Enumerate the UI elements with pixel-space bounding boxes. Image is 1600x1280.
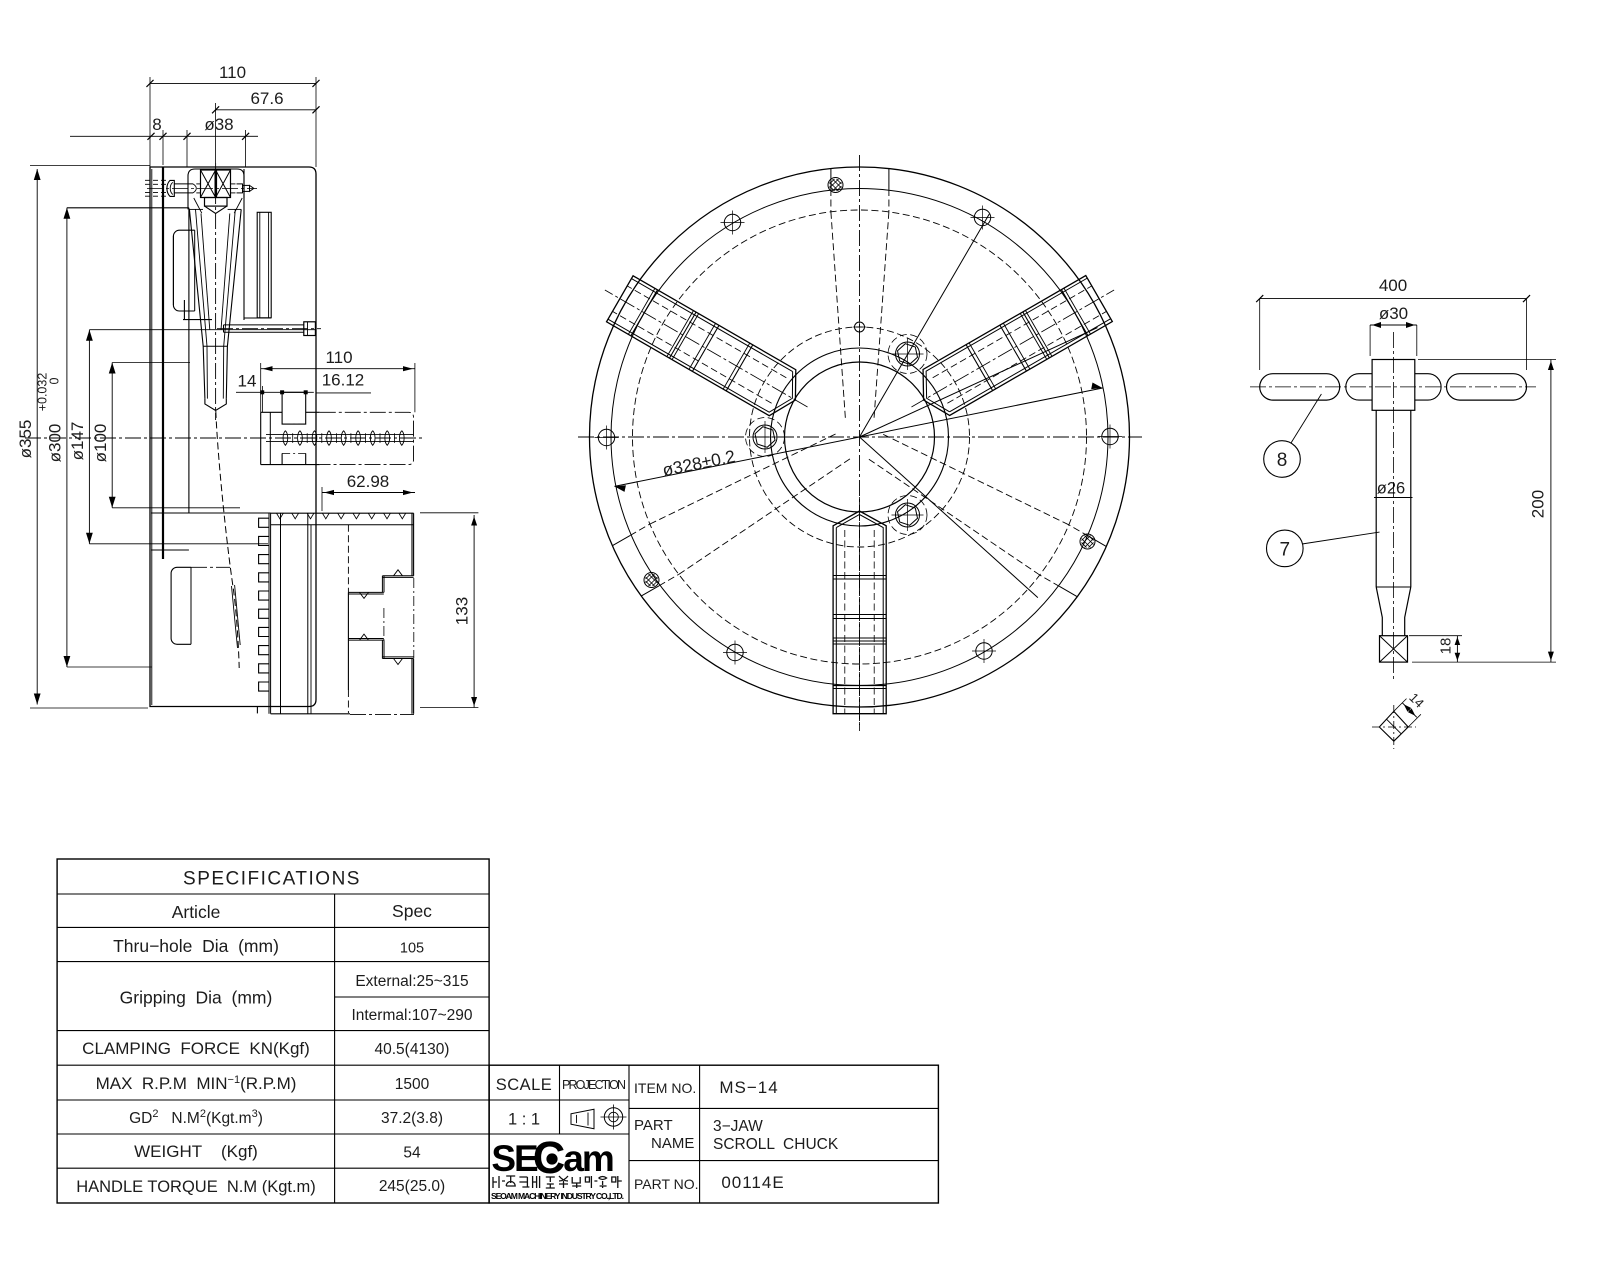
svg-text:Thru−hole Dia (mm): Thru−hole Dia (mm) <box>113 936 279 956</box>
svg-text:1 : 1: 1 : 1 <box>508 1111 540 1129</box>
svg-text:54: 54 <box>403 1145 421 1162</box>
svg-text:245(25.0): 245(25.0) <box>379 1178 445 1195</box>
svg-text:110: 110 <box>325 348 352 367</box>
svg-text:GD2 N.M2(Kgt.m3): GD2 N.M2(Kgt.m3) <box>129 1108 263 1127</box>
svg-text:HANDLE TORQUE N.M (Kgt.m): HANDLE TORQUE N.M (Kgt.m) <box>76 1178 316 1196</box>
svg-text:1500: 1500 <box>395 1076 430 1093</box>
svg-text:CLAMPING FORCE KN(Kgf): CLAMPING FORCE KN(Kgf) <box>82 1039 310 1058</box>
svg-text:105: 105 <box>400 941 424 957</box>
svg-text:16.12: 16.12 <box>322 371 365 390</box>
svg-text:Gripping Dia (mm): Gripping Dia (mm) <box>120 988 273 1008</box>
svg-text:00114E: 00114E <box>721 1173 784 1192</box>
svg-text:18: 18 <box>1438 638 1455 655</box>
svg-text:Article: Article <box>172 902 221 922</box>
svg-text:133: 133 <box>453 597 472 625</box>
svg-text:ø100: ø100 <box>91 424 110 463</box>
svg-text:8: 8 <box>152 115 161 134</box>
svg-text:ø300: ø300 <box>46 424 65 463</box>
svg-text:8: 8 <box>1277 450 1288 471</box>
svg-text:SE: SE <box>491 1138 538 1179</box>
svg-text:200: 200 <box>1529 490 1548 518</box>
svg-text:am: am <box>563 1138 613 1179</box>
svg-text:400: 400 <box>1379 276 1407 295</box>
svg-text:PART: PART <box>634 1117 673 1134</box>
svg-text:SCALE: SCALE <box>496 1076 553 1094</box>
svg-text:67.6: 67.6 <box>250 89 283 108</box>
svg-text:ø147: ø147 <box>68 422 87 461</box>
svg-text:SCROLL CHUCK: SCROLL CHUCK <box>713 1136 839 1153</box>
svg-text:ø30: ø30 <box>1379 304 1408 323</box>
svg-text:40.5(4130): 40.5(4130) <box>375 1041 450 1058</box>
svg-text:7: 7 <box>1280 539 1291 560</box>
svg-text:Spec: Spec <box>392 901 432 921</box>
svg-text:WEIGHT (Kgf): WEIGHT (Kgf) <box>134 1142 258 1161</box>
svg-text:3−JAW: 3−JAW <box>713 1118 763 1135</box>
svg-text:37.2(3.8): 37.2(3.8) <box>381 1110 443 1127</box>
svg-text:NAME: NAME <box>651 1135 694 1152</box>
svg-text:ø38: ø38 <box>204 115 233 134</box>
svg-text:14: 14 <box>238 372 257 391</box>
svg-text:MS−14: MS−14 <box>719 1078 778 1097</box>
svg-text:110: 110 <box>219 63 246 82</box>
svg-text:SPECIFICATIONS: SPECIFICATIONS <box>183 869 361 890</box>
svg-text:PROJECTION: PROJECTION <box>562 1078 626 1092</box>
svg-text:Intermal:107~290: Intermal:107~290 <box>351 1007 472 1024</box>
svg-text:ø355: ø355 <box>16 420 35 459</box>
svg-text:0: 0 <box>48 377 62 384</box>
svg-text:PART NO.: PART NO. <box>634 1176 699 1192</box>
svg-text:ø26: ø26 <box>1377 480 1405 498</box>
svg-text:ITEM NO.: ITEM NO. <box>634 1080 696 1096</box>
svg-text:External:25~315: External:25~315 <box>355 973 468 990</box>
svg-text:SEOAM MACHINERY INDUSTRY CO.,L: SEOAM MACHINERY INDUSTRY CO.,LTD. <box>491 1191 624 1201</box>
svg-text:MAX R.P.M MIN−1(R.P.M): MAX R.P.M MIN−1(R.P.M) <box>96 1074 297 1093</box>
svg-text:62.98: 62.98 <box>347 472 390 491</box>
